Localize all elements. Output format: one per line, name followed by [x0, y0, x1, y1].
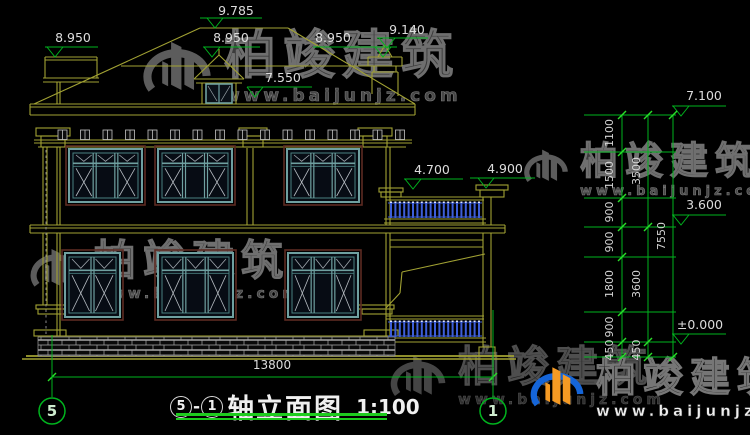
- cad-drawing: 9.785 8.950 8.950 8.950 9.140 7.550 4.70…: [0, 0, 750, 435]
- dim-seg-450b: 450: [630, 340, 643, 361]
- dim-seg-1500: 1500: [603, 161, 616, 189]
- title-underline-thin: [176, 418, 387, 420]
- window: [284, 146, 362, 205]
- windows: [62, 84, 362, 320]
- elevation-label-eave-mid: 8.950: [213, 30, 249, 45]
- window: [155, 146, 235, 205]
- elevation-label-ridge: 9.785: [218, 3, 254, 18]
- elevation-label-right-top: 7.100: [686, 88, 722, 103]
- elevation-label-porch: 4.900: [487, 161, 523, 176]
- dim-seg-900a: 900: [603, 202, 616, 223]
- dim-seg-3600: 3600: [630, 270, 643, 298]
- dim-seg-1800: 1800: [603, 270, 616, 298]
- window: [155, 250, 236, 320]
- balcony-railings: [388, 202, 482, 338]
- title-underline-thick: [176, 413, 387, 416]
- axis-bubble-1-label: 1: [488, 402, 498, 420]
- railing-balusters: [388, 202, 482, 219]
- axis-bubble-5-label: 5: [47, 402, 57, 420]
- elevation-label-eave-left: 8.950: [55, 30, 91, 45]
- dim-seg-900c: 900: [603, 317, 616, 338]
- drawing-title: 5 - 1 轴立面图 1:100: [170, 387, 420, 426]
- dim-seg-450a: 450: [603, 340, 616, 361]
- window: [285, 250, 361, 320]
- elevation-label-balcony: 4.700: [414, 162, 450, 177]
- window: [62, 250, 123, 320]
- elevation-label-main-eave: 7.550: [265, 70, 301, 85]
- elevation-label-ground: ±0.000: [677, 317, 723, 332]
- elevation-drawing-canvas: 柏竣建筑www.baijunjz.com柏竣建筑www.baijunjz.com…: [0, 0, 750, 435]
- dim-seg-900b: 900: [603, 232, 616, 253]
- elevation-label-chimney: 9.140: [389, 22, 425, 37]
- elevation-label-eave-right: 8.950: [315, 30, 351, 45]
- dimension-total-width: 13800: [253, 358, 291, 372]
- title-text: 轴立面图: [227, 387, 343, 426]
- dim-seg-3500: 3500: [630, 157, 643, 185]
- dim-seg-1100: 1100: [603, 119, 616, 147]
- railing-balusters: [388, 321, 482, 338]
- dim-seg-7550: 7550: [655, 222, 668, 250]
- window: [66, 146, 145, 205]
- elevation-label-second-floor: 3.600: [686, 197, 722, 212]
- dormer-window: [206, 84, 232, 103]
